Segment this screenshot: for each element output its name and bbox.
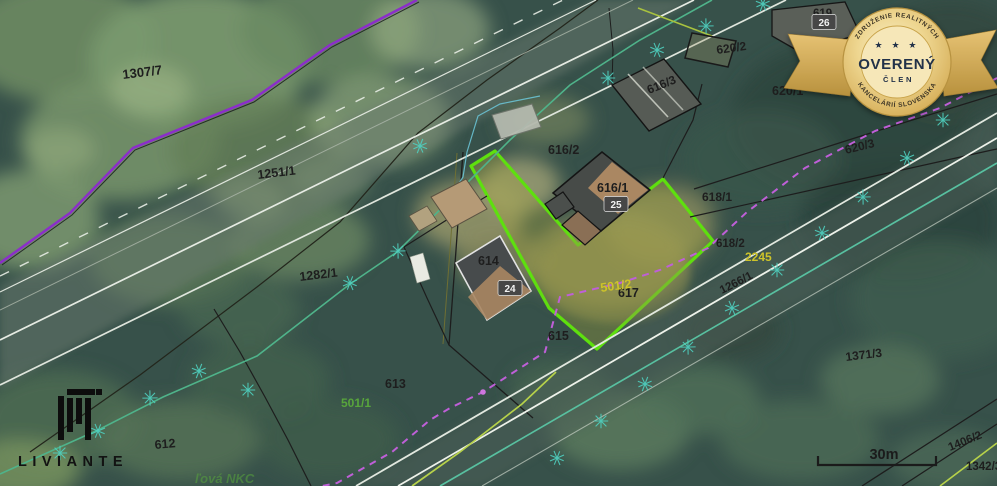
parcel-label: 618/2 bbox=[716, 238, 745, 250]
parcel-label: ľová NKC bbox=[195, 471, 255, 486]
tree-icon bbox=[936, 113, 950, 127]
parcel-label: 615 bbox=[548, 329, 569, 343]
badge-main-text: OVERENÝ bbox=[858, 55, 936, 73]
aerial-cadastral-map: 1307/71251/11282/1612613615614616/2616/1… bbox=[0, 0, 997, 486]
parcel-label: 2245 bbox=[745, 250, 772, 264]
cadastral-map-screenshot: 1307/71251/11282/1612613615614616/2616/1… bbox=[0, 0, 997, 486]
parcel-label: 613 bbox=[385, 377, 406, 391]
liviante-wordmark: LIVIANTE bbox=[18, 454, 128, 470]
house-number-badge: 26 bbox=[812, 15, 836, 30]
tree-icon bbox=[594, 414, 608, 428]
parcel-label: 1342/3 bbox=[966, 461, 997, 473]
parcel-label: 616/2 bbox=[548, 143, 579, 157]
tree-icon bbox=[241, 383, 255, 397]
house-number-badge: 25 bbox=[604, 197, 628, 212]
parcel-label: 618/1 bbox=[702, 190, 732, 204]
house-number-badge: 24 bbox=[498, 281, 522, 296]
line-node-dot bbox=[480, 389, 486, 395]
tree-icon bbox=[601, 71, 615, 85]
scale-bar-label: 30m bbox=[869, 447, 898, 463]
badge-sub-text: ČLEN bbox=[883, 75, 914, 84]
svg-text:25: 25 bbox=[610, 200, 622, 211]
svg-text:24: 24 bbox=[504, 284, 516, 295]
parcel-label: 616/1 bbox=[597, 181, 628, 195]
parcel-label: 612 bbox=[154, 436, 176, 452]
parcel-label: 614 bbox=[478, 254, 499, 268]
parcel-label: 501/1 bbox=[341, 396, 371, 410]
tree-icon bbox=[770, 263, 784, 277]
badge-stars: ★ ★ ★ bbox=[875, 41, 920, 51]
svg-text:26: 26 bbox=[818, 18, 830, 29]
